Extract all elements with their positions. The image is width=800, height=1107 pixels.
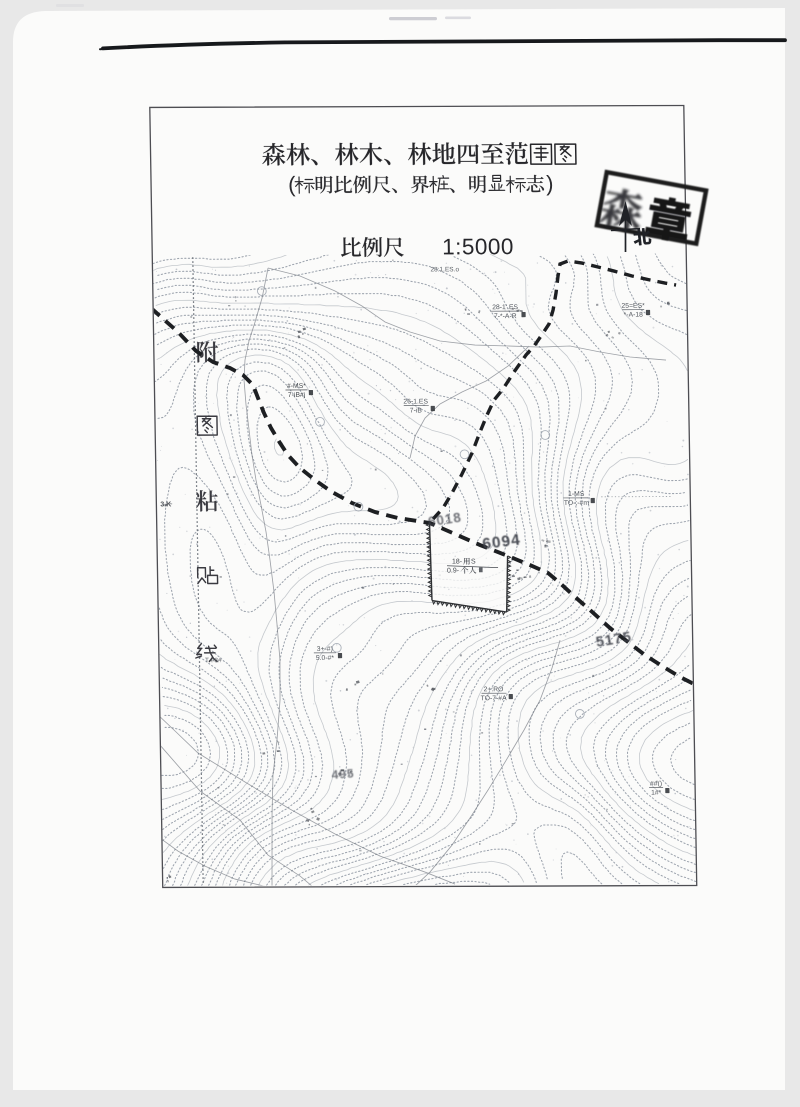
svg-text:26-1.ES: 26-1.ES [403, 398, 428, 405]
svg-text:495: 495 [331, 766, 355, 782]
svg-text:7-iB#j: 7-iB#j [288, 392, 306, 399]
svg-text:#-MS*: #-MS* [287, 383, 306, 390]
svg-text:2+:RO: 2+:RO [483, 686, 503, 693]
svg-text:25=ES*: 25=ES* [621, 303, 645, 310]
svg-text:1-MS: 1-MS [568, 491, 585, 498]
svg-text:TO-7-#A: TO-7-#A [481, 695, 508, 702]
svg-text:): ) [546, 171, 554, 196]
svg-text:*-A-18: *-A-18 [624, 312, 644, 319]
svg-text:28:1.ES.o: 28:1.ES.o [430, 266, 459, 273]
svg-text:1:5000: 1:5000 [442, 234, 514, 259]
svg-text:0.9-: 0.9- [447, 568, 460, 575]
svg-text:5.0-#*: 5.0-#* [316, 655, 335, 662]
svg-text:1#*: 1#* [651, 790, 662, 797]
svg-text:S: S [471, 558, 476, 565]
svg-text:(: ( [288, 172, 296, 197]
svg-text:7-*-A-R: 7-*-A-R [494, 313, 517, 320]
svg-text:7-iB: 7-iB [410, 407, 423, 414]
svg-text:TO-;-#m: TO-;-#m [564, 500, 590, 507]
svg-text:18-: 18- [452, 559, 463, 566]
svg-text:##(): ##() [650, 781, 662, 788]
svg-text:3+-#): 3+-#) [317, 646, 333, 653]
svg-text:T-#8#: T-#8# [205, 657, 222, 664]
